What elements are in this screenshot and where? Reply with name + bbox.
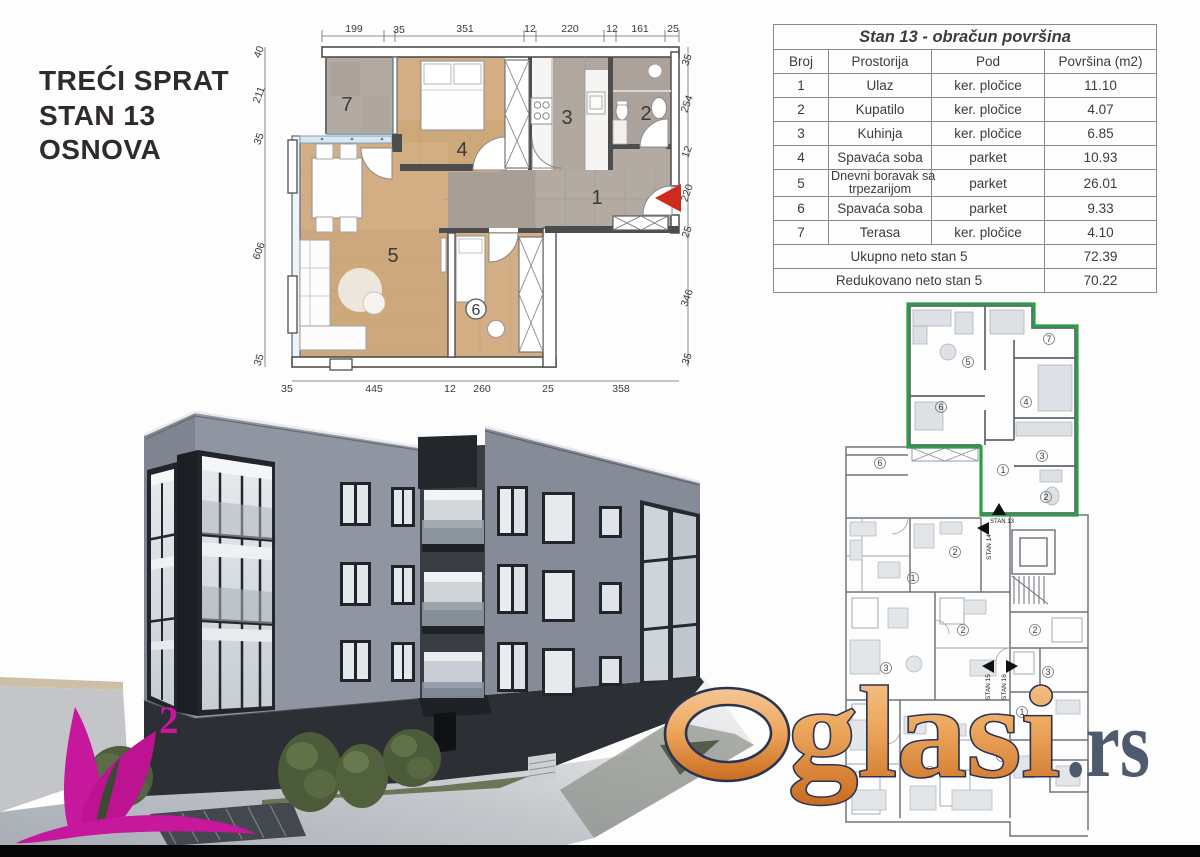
svg-text:35: 35 bbox=[680, 52, 695, 67]
svg-text:40: 40 bbox=[252, 44, 267, 59]
svg-text:2: 2 bbox=[640, 103, 651, 125]
svg-text:35: 35 bbox=[393, 24, 405, 36]
svg-text:161: 161 bbox=[631, 23, 649, 35]
svg-text:220: 220 bbox=[561, 23, 579, 35]
svg-text:5: 5 bbox=[387, 245, 398, 267]
svg-text:12: 12 bbox=[606, 23, 618, 35]
svg-text:STAN 14: STAN 14 bbox=[986, 534, 993, 560]
svg-text:2: 2 bbox=[1032, 625, 1037, 635]
svg-text:2: 2 bbox=[952, 547, 957, 557]
svg-text:25: 25 bbox=[680, 224, 695, 239]
svg-text:1: 1 bbox=[1000, 465, 1005, 475]
svg-text:.rs: .rs bbox=[1066, 690, 1150, 797]
svg-text:6: 6 bbox=[938, 402, 943, 412]
svg-text:2: 2 bbox=[1043, 492, 1048, 502]
svg-text:4: 4 bbox=[456, 139, 467, 161]
svg-text:2: 2 bbox=[159, 699, 179, 742]
svg-text:1: 1 bbox=[910, 573, 915, 583]
svg-text:1: 1 bbox=[591, 187, 602, 209]
svg-text:3: 3 bbox=[561, 107, 572, 129]
svg-text:4: 4 bbox=[1023, 397, 1028, 407]
svg-text:5: 5 bbox=[965, 357, 970, 367]
svg-text:199: 199 bbox=[345, 23, 363, 35]
svg-text:346: 346 bbox=[679, 288, 696, 309]
svg-text:351: 351 bbox=[456, 23, 474, 35]
svg-text:STAN 13: STAN 13 bbox=[990, 519, 1015, 525]
svg-text:6: 6 bbox=[877, 458, 882, 468]
svg-text:3: 3 bbox=[1039, 451, 1044, 461]
svg-text:12: 12 bbox=[680, 144, 695, 159]
svg-text:6: 6 bbox=[472, 302, 481, 319]
svg-text:7: 7 bbox=[341, 94, 352, 116]
svg-text:2: 2 bbox=[960, 625, 965, 635]
svg-text:35: 35 bbox=[252, 131, 267, 146]
svg-text:220: 220 bbox=[679, 183, 696, 204]
svg-text:12: 12 bbox=[524, 23, 536, 35]
svg-text:35: 35 bbox=[252, 352, 267, 367]
svg-text:25: 25 bbox=[667, 23, 679, 35]
svg-text:7: 7 bbox=[1046, 334, 1051, 344]
svg-text:35: 35 bbox=[680, 351, 695, 366]
svg-text:254: 254 bbox=[679, 94, 696, 115]
svg-text:glasi: glasi bbox=[788, 661, 1060, 805]
